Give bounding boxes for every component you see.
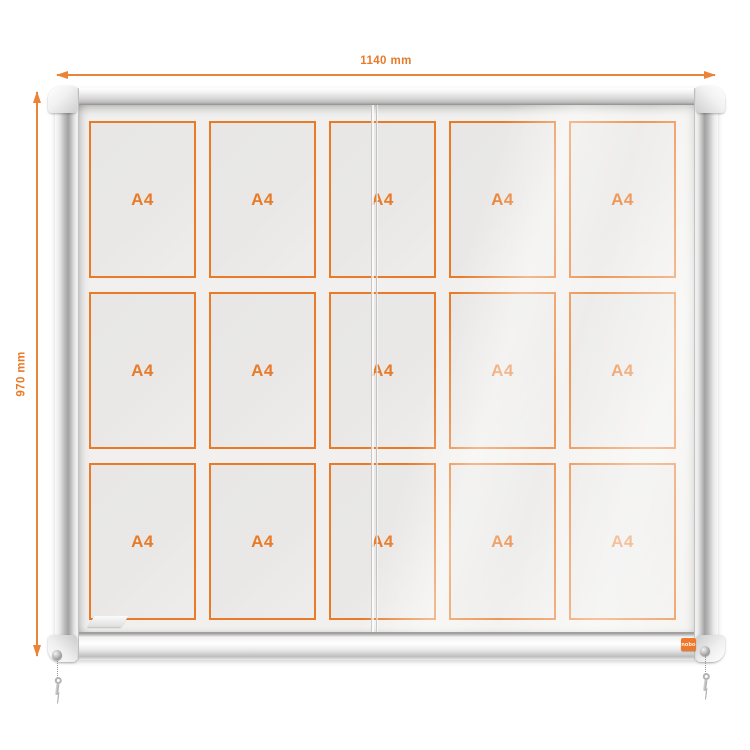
a4-slot: A4: [89, 121, 196, 278]
width-dimension-label: 1140 mm: [57, 55, 715, 67]
height-dimension-line: [36, 92, 38, 656]
lock-bottom-left: [50, 650, 64, 700]
corner-cap-top-right: [696, 86, 725, 113]
door-corner-flap: [88, 616, 129, 627]
frame-top: [55, 88, 718, 105]
a4-slot: A4: [449, 292, 556, 449]
a4-slot: A4: [329, 292, 436, 449]
product-image: 1140 mm 970 mm A4A4A4A4A4A4A4A4A4A4A4A4A…: [0, 0, 750, 750]
a4-slot: A4: [569, 463, 676, 620]
arrow-down-icon: [33, 645, 41, 657]
key-chain: [57, 659, 58, 678]
nobo-logo: nobo: [681, 638, 696, 651]
height-dimension-label-wrap: 970 mm: [12, 92, 32, 656]
a4-slot: A4: [449, 463, 556, 620]
glass-panel: A4A4A4A4A4A4A4A4A4A4A4A4A4A4A4: [79, 104, 694, 633]
corner-cap-top-left: [48, 86, 77, 113]
a4-slot-label: A4: [131, 532, 154, 552]
arrow-left-icon: [56, 71, 68, 79]
arrow-right-icon: [704, 71, 716, 79]
key-blade: [703, 680, 707, 691]
a4-slot-label: A4: [611, 361, 634, 381]
a4-slot-label: A4: [611, 532, 634, 552]
lock-bottom-right: [698, 646, 712, 696]
a4-slot-label: A4: [251, 532, 274, 552]
frame-right: [694, 88, 718, 660]
a4-slot-label: A4: [491, 361, 514, 381]
a4-slot-label: A4: [491, 190, 514, 210]
arrow-up-icon: [33, 91, 41, 103]
a4-slot: A4: [209, 121, 316, 278]
a4-slot-label: A4: [251, 361, 274, 381]
key-blade: [55, 684, 59, 695]
frame-bottom: [55, 632, 718, 660]
key-chain: [705, 655, 706, 674]
a4-slot: A4: [209, 463, 316, 620]
height-dimension-label: 970 mm: [16, 351, 28, 396]
a4-slot: A4: [329, 121, 436, 278]
a4-slot: A4: [89, 292, 196, 449]
a4-slot: A4: [89, 463, 196, 620]
a4-slot-label: A4: [131, 190, 154, 210]
a4-slot-label: A4: [491, 532, 514, 552]
a4-slot-label: A4: [251, 190, 274, 210]
a4-grid: A4A4A4A4A4A4A4A4A4A4A4A4A4A4A4: [89, 121, 676, 620]
a4-slot-label: A4: [131, 361, 154, 381]
frame-left: [55, 88, 79, 660]
width-dimension-line: [57, 74, 715, 76]
nobo-logo-text: nobo: [681, 642, 695, 648]
key-icon: [52, 677, 63, 698]
key-icon: [700, 673, 711, 694]
a4-slot: A4: [209, 292, 316, 449]
a4-slot-label: A4: [611, 190, 634, 210]
a4-slot: A4: [569, 292, 676, 449]
sliding-door-divider: [370, 104, 379, 633]
a4-slot: A4: [569, 121, 676, 278]
display-case: A4A4A4A4A4A4A4A4A4A4A4A4A4A4A4: [55, 88, 718, 660]
a4-slot: A4: [449, 121, 556, 278]
a4-slot: A4: [329, 463, 436, 620]
